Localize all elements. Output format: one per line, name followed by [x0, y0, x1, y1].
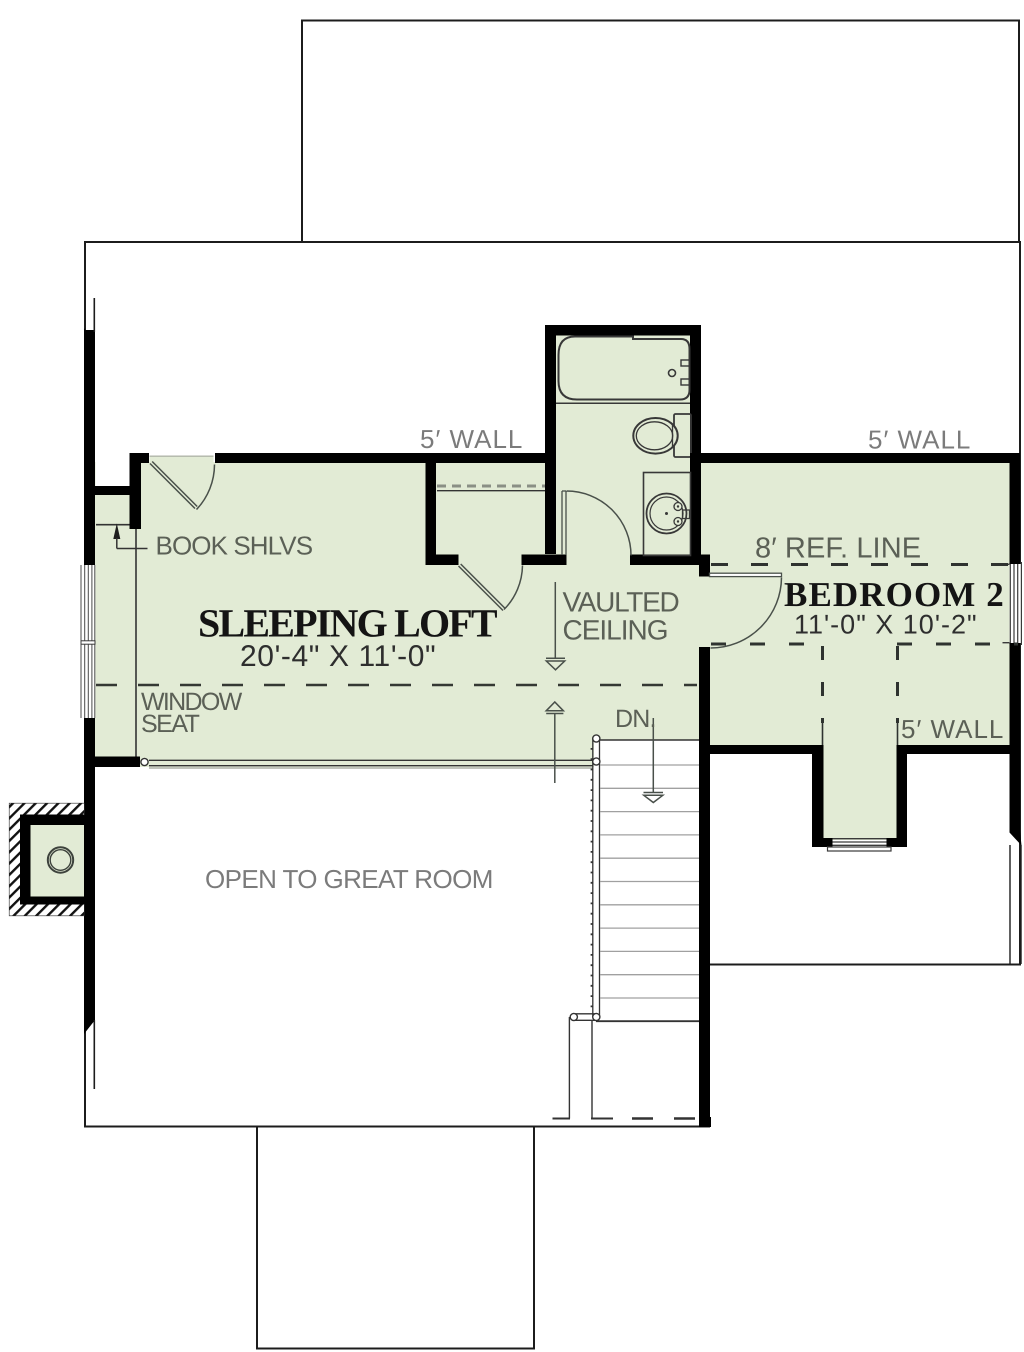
svg-text:SEAT: SEAT [141, 710, 200, 738]
svg-text:20'-4" X 11'-0": 20'-4" X 11'-0" [240, 640, 436, 673]
svg-text:SLEEPING LOFT: SLEEPING LOFT [198, 601, 498, 646]
svg-text:8′ REF. LINE: 8′ REF. LINE [755, 533, 921, 565]
svg-text:BEDROOM 2: BEDROOM 2 [784, 575, 1005, 614]
svg-text:11'-0" X 10'-2": 11'-0" X 10'-2" [794, 610, 978, 640]
svg-text:5′ WALL: 5′ WALL [420, 424, 523, 454]
svg-text:BOOK SHLVS: BOOK SHLVS [156, 530, 313, 560]
svg-text:DN.: DN. [615, 705, 656, 733]
svg-text:VAULTED: VAULTED [563, 587, 679, 618]
svg-text:CEILING: CEILING [563, 615, 668, 646]
svg-text:5′ WALL: 5′ WALL [868, 425, 971, 455]
svg-text:5′ WALL: 5′ WALL [901, 714, 1004, 744]
svg-text:OPEN TO GREAT ROOM: OPEN TO GREAT ROOM [205, 864, 493, 894]
